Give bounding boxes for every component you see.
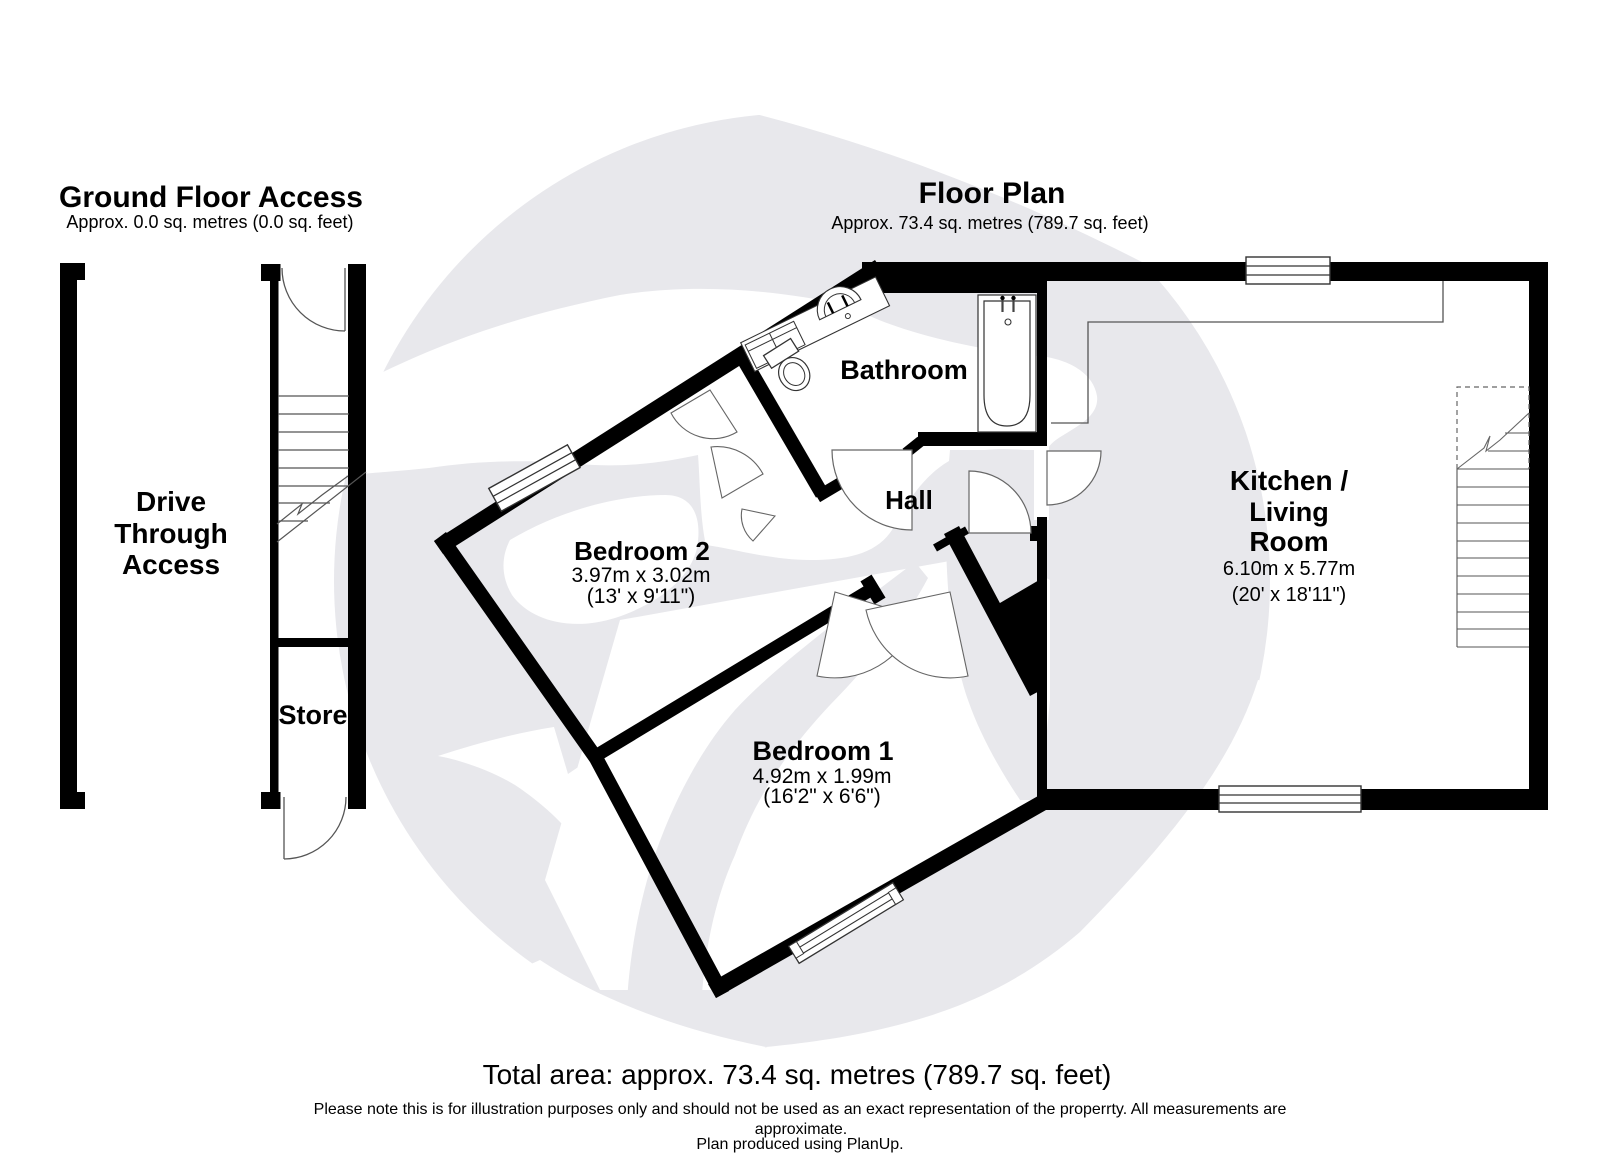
svg-text:Bedroom 1: Bedroom 1 (752, 736, 893, 766)
svg-text:Approx. 73.4 sq. metres (789.7: Approx. 73.4 sq. metres (789.7 sq. feet) (831, 213, 1148, 233)
svg-text:Drive: Drive (136, 486, 206, 517)
svg-text:Store: Store (278, 700, 347, 730)
svg-text:(16'2" x 6'6"): (16'2" x 6'6") (763, 785, 880, 808)
svg-text:Living: Living (1249, 497, 1329, 527)
svg-text:3.97m x 3.02m: 3.97m x 3.02m (572, 564, 711, 587)
svg-text:Bedroom 2: Bedroom 2 (574, 536, 710, 566)
svg-text:(20' x 18'11"): (20' x 18'11") (1232, 584, 1346, 606)
svg-text:Hall: Hall (885, 485, 933, 515)
svg-text:Total area: approx. 73.4 sq. m: Total area: approx. 73.4 sq. metres (789… (483, 1059, 1112, 1090)
svg-text:Ground Floor Access: Ground Floor Access (59, 181, 363, 214)
svg-text:Please note this is for illust: Please note this is for illustration pur… (314, 1101, 1287, 1118)
svg-text:(13' x 9'11"): (13' x 9'11") (587, 585, 695, 608)
svg-text:Bathroom: Bathroom (840, 355, 968, 385)
svg-text:Approx. 0.0 sq. metres (0.0 sq: Approx. 0.0 sq. metres (0.0 sq. feet) (66, 212, 353, 232)
svg-text:6.10m x 5.77m: 6.10m x 5.77m (1223, 558, 1355, 580)
svg-text:Kitchen /: Kitchen / (1230, 465, 1348, 496)
svg-text:Access: Access (122, 549, 220, 580)
svg-text:Through: Through (114, 518, 228, 549)
svg-text:Plan produced using PlanUp.: Plan produced using PlanUp. (696, 1136, 903, 1153)
svg-text:Floor Plan: Floor Plan (919, 177, 1066, 210)
svg-text:Room: Room (1249, 526, 1328, 557)
